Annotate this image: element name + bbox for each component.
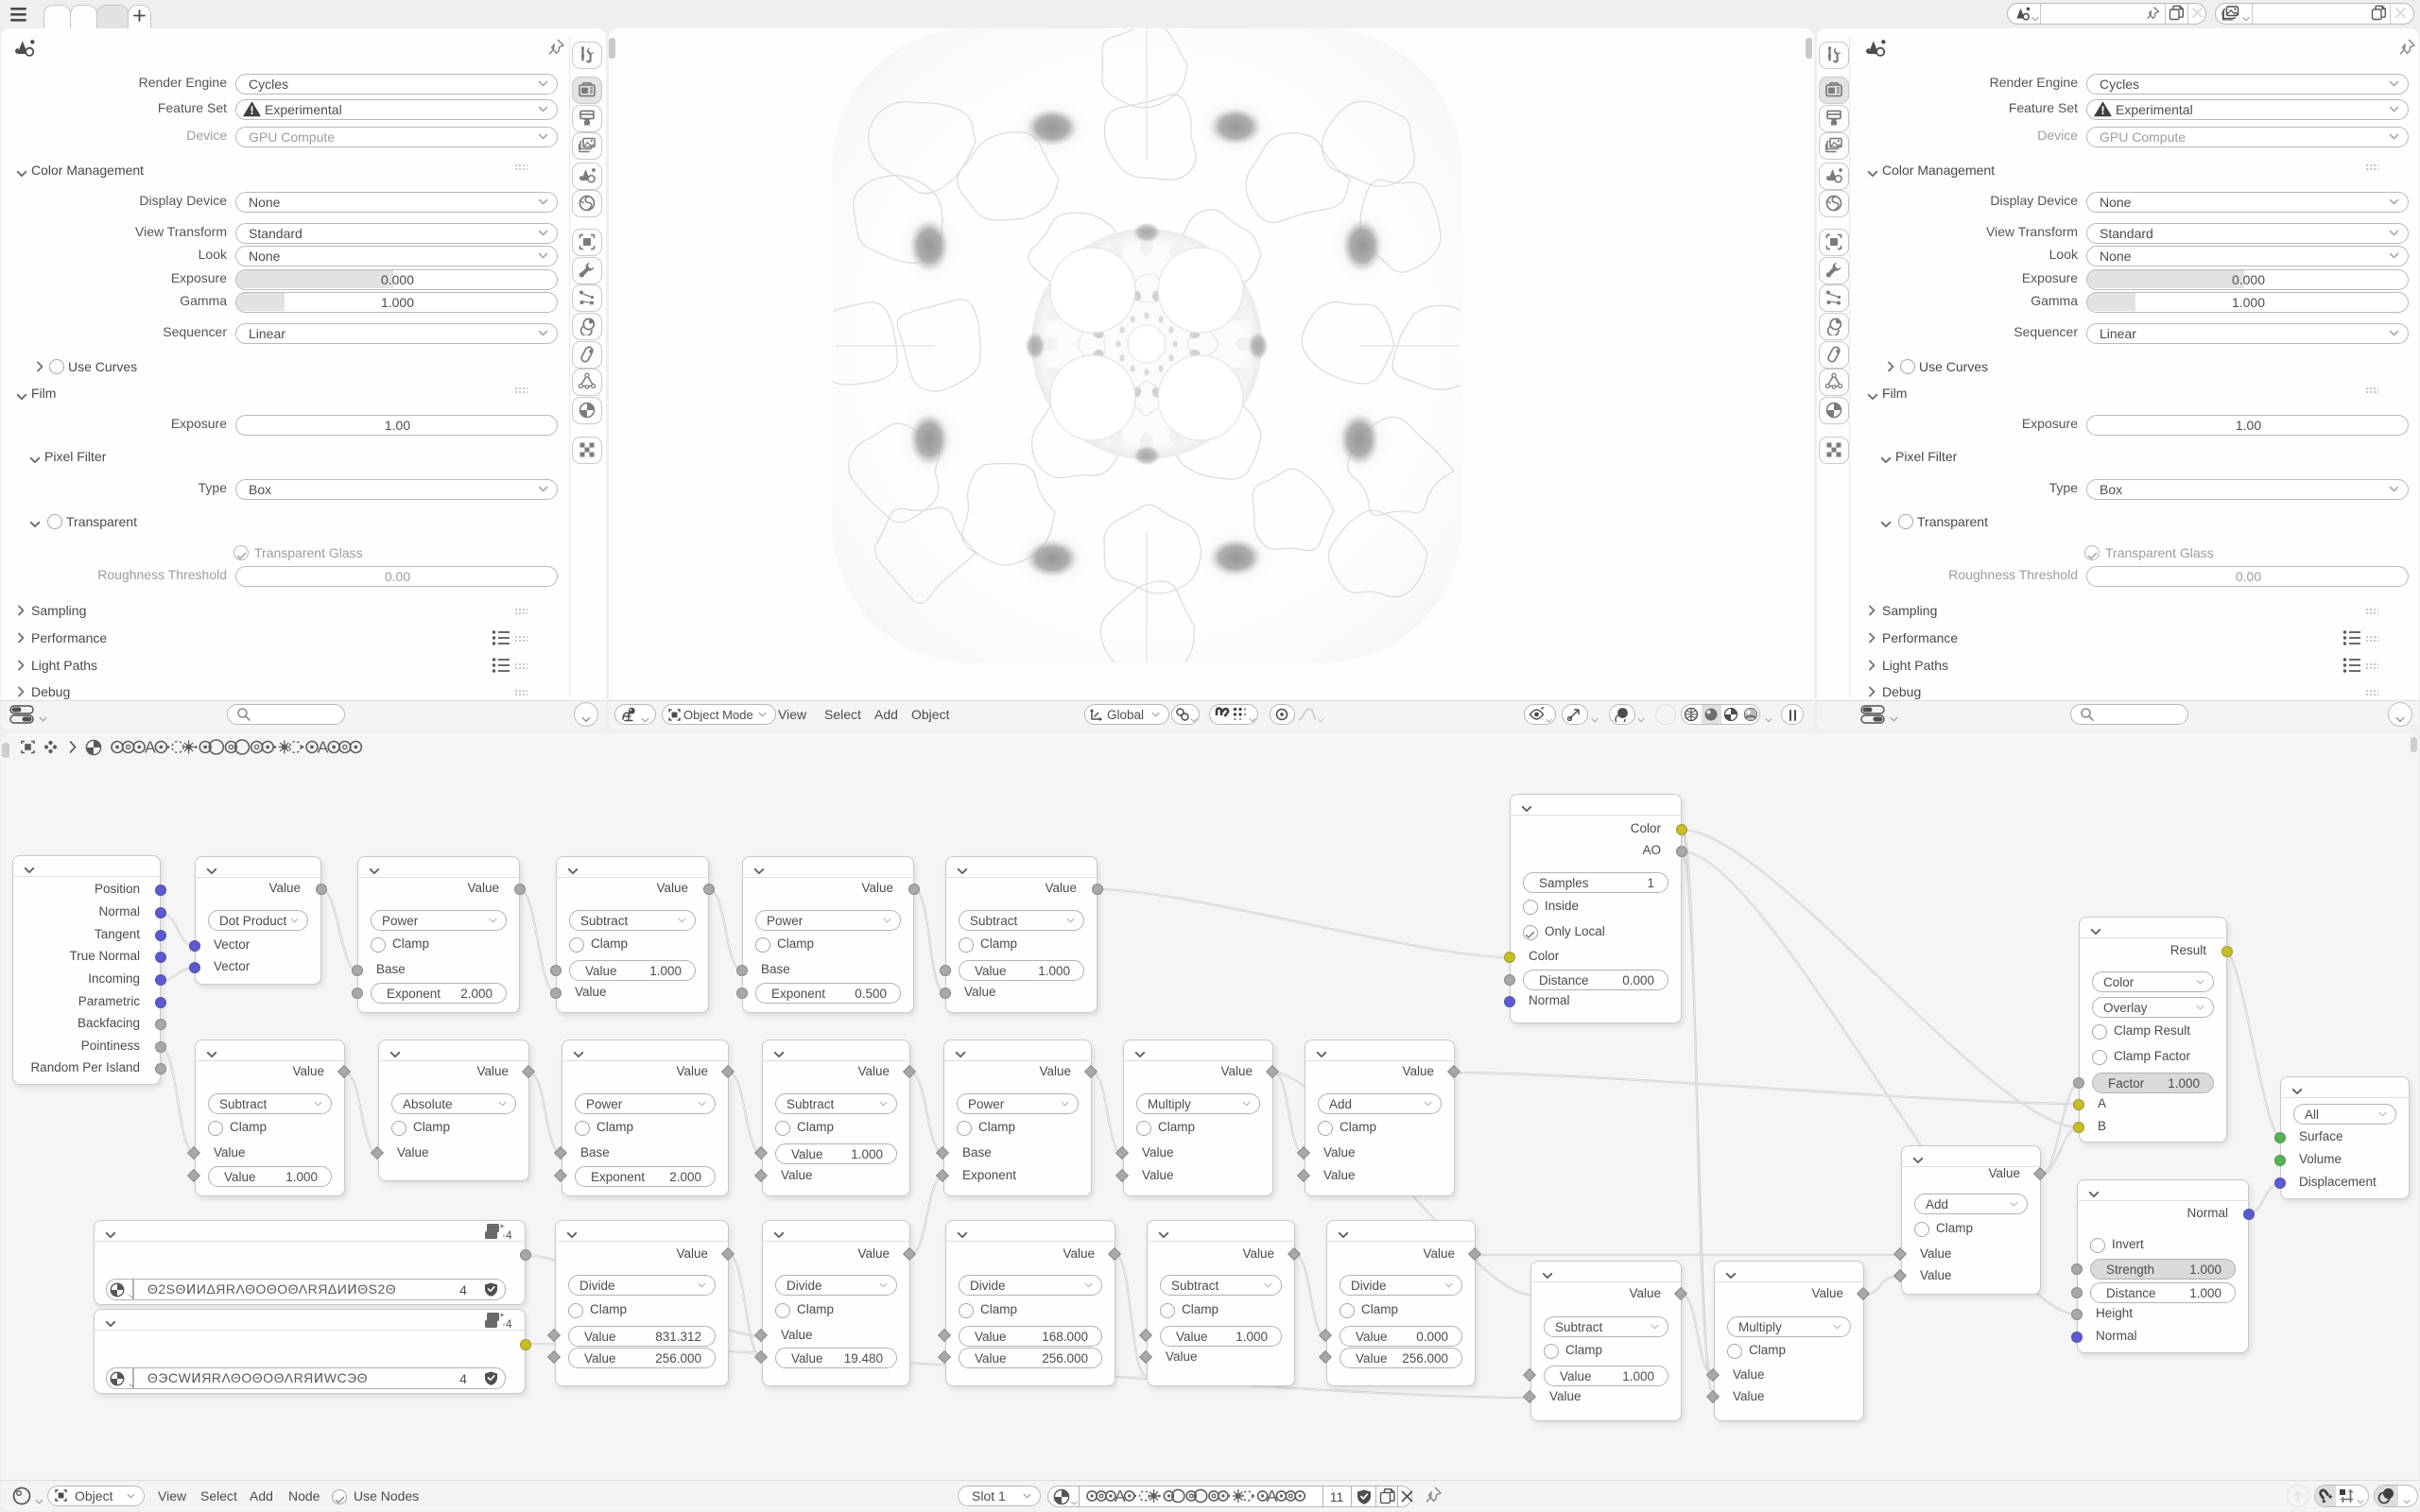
svg-text:·4: ·4	[502, 1317, 512, 1329]
svg-text:·4: ·4	[502, 1228, 512, 1240]
